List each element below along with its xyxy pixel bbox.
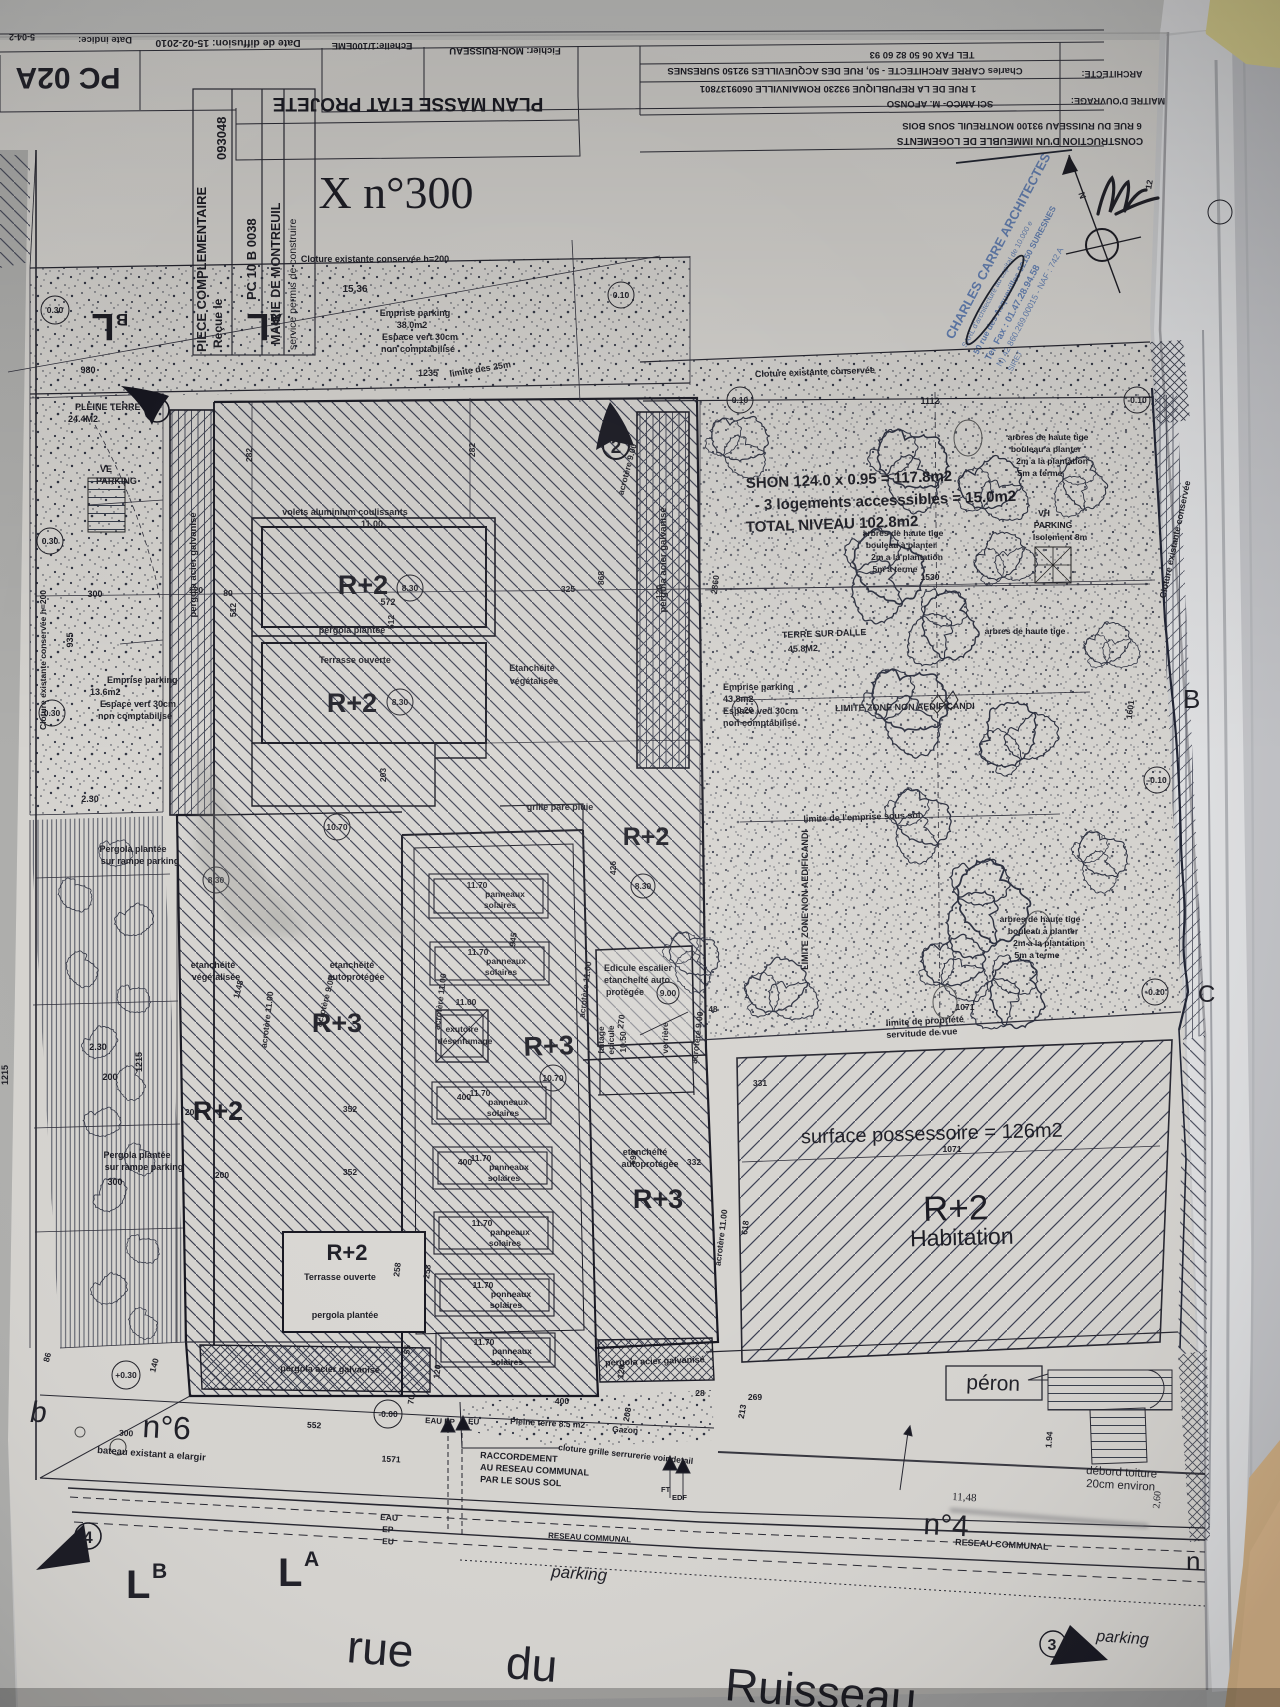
svg-text:45.8M2: 45.8M2	[788, 643, 818, 654]
svg-text:B: B	[1183, 684, 1200, 714]
svg-text:Isolement 8m: Isolement 8m	[1033, 532, 1088, 542]
svg-text:non comptabilisé: non comptabilisé	[723, 718, 797, 728]
svg-text:VH: VH	[1038, 508, 1050, 518]
svg-text:EAU: EAU	[380, 1512, 398, 1523]
svg-text:bouleau à planter: bouleau à planter	[866, 540, 937, 550]
svg-text:-0.10: -0.10	[1127, 395, 1147, 405]
svg-text:2m a la plantation: 2m a la plantation	[871, 552, 943, 562]
svg-text:1.94: 1.94	[1043, 1431, 1054, 1449]
svg-text:faitage: faitage	[596, 1026, 606, 1054]
svg-text:300: 300	[87, 589, 102, 599]
svg-text:400: 400	[555, 1396, 569, 1406]
svg-text:arbres de haute tige: arbres de haute tige	[863, 528, 944, 538]
svg-text:400: 400	[458, 1157, 472, 1167]
svg-text:VE: VE	[100, 464, 112, 474]
svg-text:Echelle:1/100EME: Echelle:1/100EME	[332, 40, 413, 51]
svg-text:1571: 1571	[381, 1454, 401, 1465]
svg-text:non comptabilisé: non comptabilisé	[98, 711, 172, 721]
svg-text:2.30: 2.30	[89, 1042, 107, 1052]
svg-text:R+2: R+2	[193, 1096, 243, 1126]
svg-text:1071: 1071	[943, 1144, 962, 1154]
svg-text:-0.00: -0.00	[378, 1409, 398, 1419]
svg-text:-0.10: -0.10	[1145, 987, 1165, 997]
svg-text:10.70: 10.70	[326, 822, 348, 832]
svg-text:volets aluminium coulissants: volets aluminium coulissants	[282, 507, 408, 517]
svg-text:R+2: R+2	[623, 823, 670, 851]
svg-text:Etanchéité: Etanchéité	[509, 663, 555, 673]
svg-text:200: 200	[185, 1107, 199, 1117]
svg-text:1215: 1215	[134, 1052, 144, 1072]
svg-text:Pergola plantée: Pergola plantée	[99, 844, 166, 854]
svg-text:Gazon: Gazon	[612, 1424, 638, 1435]
svg-text:L: L	[278, 1551, 302, 1595]
svg-text:Espace ved 30cm: Espace ved 30cm	[723, 706, 798, 716]
svg-text:panneaux: panneaux	[492, 1346, 532, 1356]
svg-text:11.00: 11.00	[361, 519, 383, 529]
svg-text:2.30: 2.30	[81, 794, 99, 804]
svg-text:980: 980	[80, 365, 95, 375]
svg-text:TEL FAX 06 50 82 60 93: TEL FAX 06 50 82 60 93	[870, 49, 975, 60]
svg-text:Terrasse ouverte: Terrasse ouverte	[319, 655, 391, 665]
svg-text:868: 868	[596, 571, 606, 585]
svg-text:5-04-2: 5-04-2	[9, 32, 35, 42]
svg-text:1530: 1530	[921, 572, 940, 582]
svg-text:200: 200	[215, 1170, 229, 1180]
svg-text:R+2: R+2	[338, 570, 388, 600]
svg-text:PLEINE TERRE: PLEINE TERRE	[75, 402, 141, 412]
svg-text:etanchéité: etanchéité	[191, 960, 236, 970]
svg-text:2m a la plantation: 2m a la plantation	[1016, 456, 1088, 466]
svg-text:258: 258	[421, 1264, 433, 1280]
svg-text:panneaux: panneaux	[485, 889, 525, 899]
svg-text:13.6m2: 13.6m2	[90, 687, 121, 697]
svg-text:arbres de haute tige: arbres de haute tige	[1000, 914, 1081, 924]
svg-text:Fichier: MON-RUISSEAU: Fichier: MON-RUISSEAU	[449, 45, 561, 56]
svg-text:0.30: 0.30	[42, 536, 59, 546]
svg-text:végétalisée: végétalisée	[510, 676, 559, 686]
svg-text:PARKING: PARKING	[1034, 520, 1073, 530]
svg-text:panneaux: panneaux	[486, 956, 526, 966]
svg-text:325: 325	[561, 584, 575, 594]
svg-text:11,48: 11,48	[952, 1491, 977, 1504]
svg-text:512: 512	[386, 615, 396, 629]
svg-text:MAITRE D'OUVRAGE:: MAITRE D'OUVRAGE:	[1071, 96, 1165, 106]
svg-text:2m a la plantation: 2m a la plantation	[1013, 938, 1085, 948]
svg-text:LIMITE ZONE NON AEDIFICANDI: LIMITE ZONE NON AEDIFICANDI	[800, 830, 810, 970]
svg-text:4: 4	[83, 1528, 93, 1547]
svg-text:grille pare pluie: grille pare pluie	[527, 802, 594, 812]
svg-text:FT: FT	[661, 1485, 671, 1494]
svg-text:43.8m2: 43.8m2	[723, 694, 754, 704]
svg-text:8.30: 8.30	[392, 697, 409, 707]
svg-text:pergola acier galvanisé: pergola acier galvanisé	[188, 512, 199, 617]
svg-text:protégée: protégée	[606, 987, 644, 997]
svg-text:sur rampe parking: sur rampe parking	[105, 1162, 184, 1172]
svg-text:non comptabilisé: non comptabilisé	[381, 344, 455, 354]
svg-text:Cloture existante conservée h=: Cloture existante conservée h=200	[38, 590, 48, 730]
svg-text:24.4M2: 24.4M2	[68, 414, 98, 424]
svg-text:pergola plantée: pergola plantée	[319, 625, 386, 635]
svg-text:PARKING: PARKING	[96, 476, 137, 486]
svg-text:ARCHITECTE:: ARCHITECTE:	[1082, 69, 1143, 79]
svg-text:Habitation: Habitation	[910, 1223, 1014, 1252]
svg-text:945: 945	[507, 932, 519, 948]
svg-text:352: 352	[343, 1167, 357, 1177]
svg-text:203: 203	[378, 768, 388, 782]
svg-text:2,60: 2,60	[1151, 1491, 1163, 1509]
svg-text:EDF: EDF	[672, 1493, 687, 1502]
svg-text:618: 618	[739, 1220, 751, 1236]
svg-text:solaires: solaires	[491, 1357, 523, 1367]
svg-text:15,36: 15,36	[342, 284, 367, 295]
svg-text:edicule: edicule	[606, 1025, 616, 1055]
svg-text:120: 120	[615, 1364, 627, 1380]
svg-text:n: n	[1186, 1546, 1200, 1576]
svg-text:panneaux: panneaux	[489, 1162, 529, 1172]
svg-text:L: L	[126, 1563, 150, 1607]
svg-text:rue: rue	[345, 1620, 415, 1677]
svg-text:55: 55	[401, 1344, 412, 1355]
svg-text:parking: parking	[550, 1562, 608, 1585]
svg-text:pergola acier galvanisé: pergola acier galvanisé	[658, 507, 669, 612]
svg-text:0.10: 0.10	[732, 395, 749, 405]
svg-text:Espace vert 30cm: Espace vert 30cm	[100, 699, 176, 709]
svg-text:8.30: 8.30	[208, 875, 225, 885]
svg-text:Edicule escalier: Edicule escalier	[604, 963, 673, 973]
svg-text:3: 3	[1048, 1637, 1057, 1654]
svg-text:38.0m2: 38.0m2	[397, 320, 428, 330]
svg-text:1235: 1235	[418, 368, 438, 378]
svg-text:A: A	[270, 310, 282, 329]
svg-text:R+3: R+3	[633, 1184, 683, 1214]
svg-text:L: L	[91, 305, 114, 347]
svg-text:B: B	[152, 1560, 167, 1583]
svg-text:panneaux: panneaux	[488, 1097, 528, 1107]
svg-text:332: 332	[687, 1157, 701, 1167]
svg-text:EU: EU	[382, 1536, 394, 1547]
svg-text:400: 400	[457, 1092, 471, 1102]
svg-text:0.30: 0.30	[47, 305, 64, 315]
svg-text:arbres de haute tige: arbres de haute tige	[1008, 432, 1089, 442]
svg-text:093048: 093048	[214, 117, 229, 160]
svg-text:-0.10: -0.10	[1147, 775, 1167, 785]
svg-text:48: 48	[709, 1005, 718, 1014]
svg-text:80: 80	[223, 588, 233, 598]
svg-text:C: C	[1198, 981, 1215, 1008]
svg-text:282: 282	[467, 443, 477, 457]
svg-text:935: 935	[65, 632, 75, 647]
svg-text:etanchéité: etanchéité	[330, 960, 375, 970]
svg-text:0.10: 0.10	[613, 290, 630, 300]
svg-text:arbres de haute tige: arbres de haute tige	[985, 626, 1066, 636]
svg-text:R+2: R+2	[327, 1240, 368, 1265]
svg-text:b: b	[30, 1396, 47, 1429]
svg-text:11.00: 11.00	[456, 997, 477, 1007]
svg-text:512: 512	[228, 603, 238, 617]
svg-text:SCI AMCO- M. AFONSO: SCI AMCO- M. AFONSO	[887, 98, 993, 109]
svg-text:L: L	[246, 305, 269, 347]
svg-text:200: 200	[102, 1072, 117, 1082]
svg-text:1215: 1215	[0, 1065, 10, 1085]
svg-text:270: 270	[615, 1014, 627, 1030]
svg-text:Espace vert 30cm: Espace vert 30cm	[382, 332, 458, 342]
svg-text:8.30: 8.30	[635, 881, 652, 891]
svg-text:269: 269	[748, 1392, 762, 1402]
svg-text:572: 572	[380, 597, 395, 607]
svg-text:solaires: solaires	[488, 1173, 520, 1183]
svg-text:693: 693	[627, 1150, 639, 1166]
svg-text:552: 552	[307, 1420, 322, 1431]
svg-text:5m a terme: 5m a terme	[1015, 950, 1060, 960]
svg-text:X n°300: X n°300	[318, 167, 473, 218]
svg-text:8.30: 8.30	[402, 583, 419, 593]
svg-text:300: 300	[107, 1177, 122, 1187]
svg-text:426: 426	[608, 861, 618, 875]
svg-text:5m a terme: 5m a terme	[873, 564, 918, 574]
svg-text:1071: 1071	[956, 1002, 975, 1012]
svg-text:+0.30: +0.30	[115, 1370, 137, 1380]
svg-text:pergola acier galvanisé: pergola acier galvanisé	[280, 1363, 380, 1375]
svg-text:28: 28	[695, 1388, 705, 1398]
svg-text:120: 120	[431, 1364, 443, 1380]
svg-text:12: 12	[1143, 179, 1155, 190]
svg-text:Emprise parking: Emprise parking	[380, 308, 451, 318]
svg-text:R+3: R+3	[523, 1030, 574, 1062]
svg-text:du: du	[504, 1636, 559, 1692]
svg-text:Charles CARRE ARCHITECTE - 50,: Charles CARRE ARCHITECTE - 50, RUE DES A…	[667, 65, 1022, 76]
svg-text:solaires: solaires	[490, 1300, 522, 1310]
svg-text:bouleau a planter: bouleau a planter	[1008, 926, 1079, 936]
svg-text:331: 331	[753, 1078, 767, 1088]
svg-text:péron: péron	[966, 1371, 1020, 1396]
svg-text:exutoire: exutoire	[445, 1024, 478, 1034]
svg-text:Terrasse ouverte: Terrasse ouverte	[304, 1272, 376, 1282]
svg-text:70: 70	[405, 1394, 416, 1405]
svg-text:EU: EU	[468, 1417, 480, 1427]
svg-text:Pergola plantée: Pergola plantée	[103, 1150, 170, 1160]
svg-text:EAU EP: EAU EP	[425, 1416, 456, 1427]
svg-text:panpeaux: panpeaux	[490, 1227, 530, 1237]
svg-text:R+2: R+2	[327, 688, 377, 718]
svg-text:Cloture existante conservée h=: Cloture existante conservée h=200	[301, 254, 449, 264]
svg-text:10.70: 10.70	[542, 1073, 564, 1083]
svg-text:solaires: solaires	[487, 1108, 519, 1118]
svg-text:CONSTRUCTION D'UN IMMEUBLE DE: CONSTRUCTION D'UN IMMEUBLE DE LOGEMENTS	[897, 135, 1144, 146]
svg-text:A: A	[304, 1548, 319, 1571]
svg-text:Emprise parking: Emprise parking	[723, 682, 794, 692]
svg-text:bouleau a planter: bouleau a planter	[1011, 444, 1082, 454]
svg-text:ponneaux: ponneaux	[491, 1289, 531, 1299]
svg-text:Emprise parking: Emprise parking	[107, 675, 178, 685]
svg-text:pergola plantée: pergola plantée	[312, 1310, 379, 1320]
svg-text:PLAN MASSE ETAT PROJETE: PLAN MASSE ETAT PROJETE	[273, 93, 544, 114]
svg-text:6 RUE DU RUISSEAU 93100 MONTRE: 6 RUE DU RUISSEAU 93100 MONTREUIL SOUS B…	[902, 120, 1142, 131]
svg-text:EP: EP	[382, 1524, 394, 1535]
svg-text:Date indice:: Date indice:	[78, 34, 132, 45]
svg-text:1 RUE DE LA REPUBLIQUE 93230 R: 1 RUE DE LA REPUBLIQUE 93230 ROMAINVILLE…	[699, 83, 976, 94]
svg-text:verrière: verrière	[660, 1022, 670, 1053]
svg-text:352: 352	[343, 1104, 357, 1114]
svg-text:5m a terme: 5m a terme	[1018, 468, 1063, 478]
svg-text:etanchelté auto: etanchelté auto	[604, 975, 671, 985]
svg-text:n°6: n°6	[142, 1408, 192, 1446]
svg-text:sur rampe parking: sur rampe parking	[101, 856, 180, 866]
svg-text:solaires: solaires	[489, 1238, 521, 1248]
svg-text:PC 02A: PC 02A	[15, 61, 120, 94]
svg-text:258: 258	[391, 1262, 403, 1278]
svg-text:B: B	[116, 310, 128, 329]
svg-text:1112: 1112	[920, 396, 939, 406]
svg-text:Date de diffusion: 15-02-2010: Date de diffusion: 15-02-2010	[155, 37, 300, 49]
svg-text:solaires: solaires	[484, 900, 516, 910]
svg-text:282: 282	[244, 448, 254, 462]
svg-text:végétalisée: végétalisée	[192, 972, 241, 982]
svg-text:10.50: 10.50	[618, 1031, 628, 1053]
svg-text:désenfumage: désenfumage	[438, 1036, 493, 1046]
svg-text:solaires: solaires	[485, 967, 517, 977]
svg-text:300: 300	[119, 1428, 134, 1439]
svg-text:9.00: 9.00	[660, 988, 677, 998]
